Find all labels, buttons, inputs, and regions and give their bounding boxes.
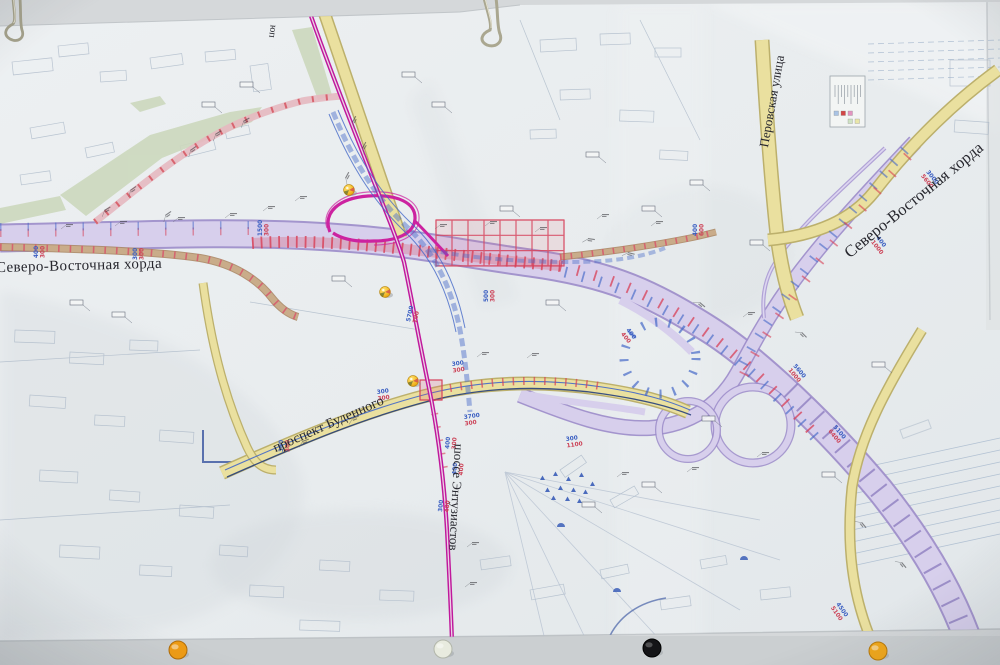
- scheme-canvas: 4003003003001500300570070030030037003003…: [0, 0, 1000, 665]
- photo-of-road-scheme: 4003003003001500300570070030030037003003…: [0, 0, 1000, 665]
- photo-vignette: [0, 0, 1000, 665]
